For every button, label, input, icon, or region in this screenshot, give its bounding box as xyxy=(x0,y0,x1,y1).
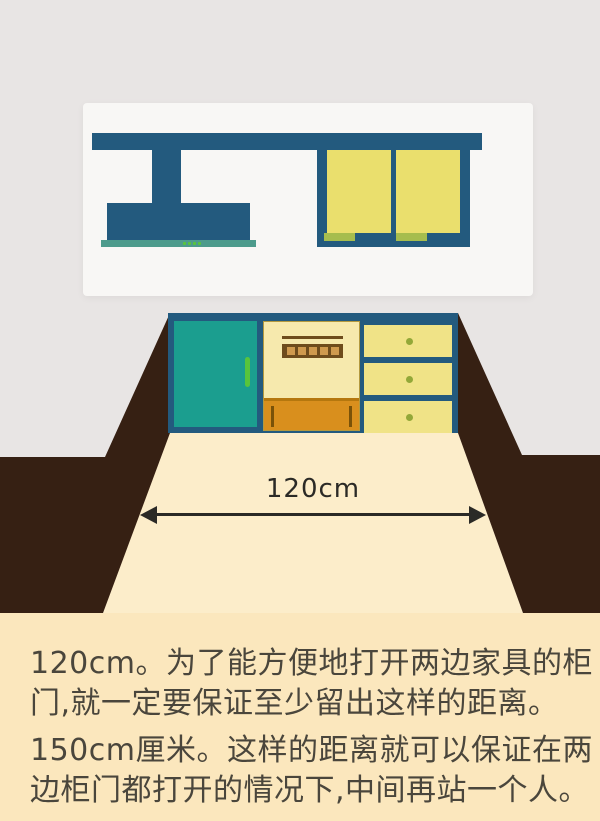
base-cabinet xyxy=(168,313,458,433)
oven-drawer xyxy=(264,398,359,430)
arrowhead-right-icon xyxy=(469,506,486,524)
drawer-stack xyxy=(364,321,452,439)
caption-line-2: 门,就一定要保证至少留出这样的距离。 xyxy=(30,684,584,724)
oven-drawer-handle-right xyxy=(349,406,352,427)
drawer-middle xyxy=(364,363,452,395)
oven-control-panel xyxy=(282,344,343,358)
drawer-top xyxy=(364,325,452,357)
oven-trim-line xyxy=(282,336,343,339)
hood-indicator-light-icon xyxy=(188,242,191,245)
oven-drawer-handle-left xyxy=(271,406,274,427)
caption-line-4: 边柜门都打开的情况下,中间再站一个人。 xyxy=(30,771,584,811)
wall-cabinet-left-door xyxy=(327,150,391,233)
wall-cabinet-left-handle xyxy=(324,233,355,241)
caption-panel: 120cm。为了能方便地打开两边家具的柜 门,就一定要保证至少留出这样的距离。 … xyxy=(0,613,600,821)
kitchen-clearance-infographic: 120cm 120cm。为了能方便地打开两边家具的柜 门,就一定要保证至少留出这… xyxy=(0,0,600,821)
oven-button-icon xyxy=(320,347,328,355)
dimension-label: 120cm xyxy=(258,474,368,504)
oven-button-icon xyxy=(287,347,295,355)
oven-button-icon xyxy=(298,347,306,355)
drawer-knob-icon xyxy=(406,338,413,345)
oven-button-icon xyxy=(331,347,339,355)
arrowhead-left-icon xyxy=(140,506,157,524)
hood-indicator-light-icon xyxy=(198,242,201,245)
wall-cabinet-right-door xyxy=(396,150,460,233)
drawer-knob-icon xyxy=(406,376,413,383)
caption-line-1: 120cm。为了能方便地打开两边家具的柜 xyxy=(30,644,584,684)
range-hood-chimney xyxy=(152,148,181,205)
drawer-knob-icon xyxy=(406,414,413,421)
caption-line-3: 150cm厘米。这样的距离就可以保证在两 xyxy=(30,731,584,771)
wall-cabinet-right-handle xyxy=(396,233,427,241)
range-hood-vent-strip xyxy=(101,240,256,247)
base-cabinet-teal-door xyxy=(174,321,257,427)
range-hood-body xyxy=(107,203,250,241)
wall-cabinet xyxy=(317,145,470,247)
dimension-line xyxy=(155,513,473,516)
oven-button-icon xyxy=(309,347,317,355)
oven-unit xyxy=(263,321,360,431)
hood-indicator-light-icon xyxy=(183,242,186,245)
teal-door-handle xyxy=(245,357,250,387)
drawer-bottom xyxy=(364,401,452,433)
hood-indicator-light-icon xyxy=(193,242,196,245)
